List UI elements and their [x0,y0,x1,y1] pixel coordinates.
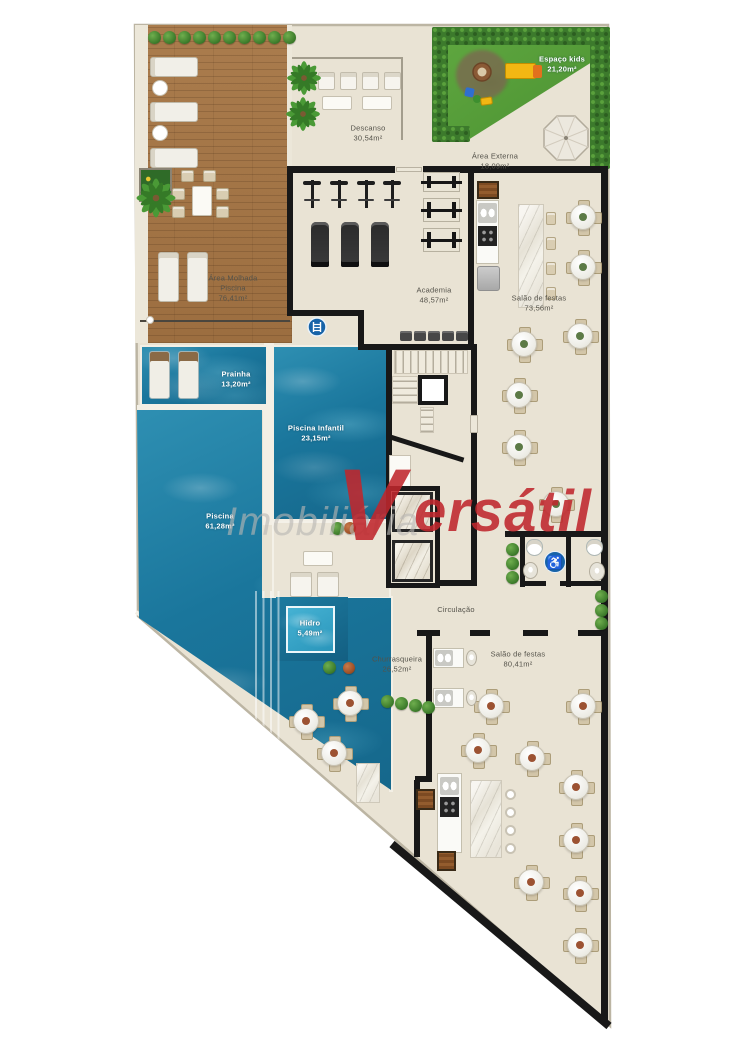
room-label-descanso: Descanso 30,54m² [351,123,386,143]
table-centerpiece [576,332,584,340]
gym-equipment [414,331,426,341]
basin [466,650,477,666]
room-name: Churrasqueira [372,654,422,664]
dining-table [507,327,541,361]
shrub [409,699,422,712]
table-centerpiece [330,749,338,757]
bar-stool [505,843,516,854]
bar-stool [505,807,516,818]
shrub [178,31,191,44]
deck-chair [216,188,229,200]
wall-segment [566,531,571,587]
shrub [163,31,176,44]
toilet [586,539,603,556]
table-centerpiece [515,391,523,399]
sun-lounger [158,252,179,302]
wall-segment [560,581,604,586]
hedge-right [590,27,610,169]
dining-table [502,430,536,464]
room-area: 76,41m² [208,293,257,303]
room-name: Piscina [205,511,234,521]
buffet-counter [356,763,380,803]
shrub [381,695,394,708]
dining-table [539,487,573,521]
dining-table [566,689,600,723]
table-centerpiece [576,941,584,949]
exercise-bike [357,180,375,208]
bar-sink [440,777,459,795]
sun-lounger [150,57,198,77]
side-table [152,80,168,96]
wall-segment [287,166,395,173]
shrub [208,31,221,44]
room-area: 61,28m² [205,521,234,531]
barbecue-grill [437,851,456,871]
dining-table [566,250,600,284]
weight-bench [423,198,460,222]
bar-stool [505,825,516,836]
floor-plan-canvas: Área Molhada Piscina 76,41m² Descanso 30… [0,0,742,1050]
stair-landing [418,375,448,405]
bar-island [470,780,502,858]
wall-segment [287,166,293,316]
gazebo [544,116,588,160]
room-name: Piscina [208,283,257,293]
hedge-top [432,27,610,45]
elevator-car [392,492,433,532]
bathroom-sink [523,562,538,579]
exercise-bike [303,180,321,208]
shrub [283,31,296,44]
room-name: Academia [417,285,452,295]
bathroom-sink [589,562,605,581]
room-label-salao-festas-1: Salão de festas 73,56m² [512,293,567,313]
table-centerpiece [579,702,587,710]
table-centerpiece [579,213,587,221]
table-centerpiece [515,443,523,451]
gym-equipment [456,331,468,341]
deck-table [192,186,212,216]
hedge-corner [432,126,470,142]
wall-segment [287,310,364,316]
shrub [422,701,435,714]
shrub [238,31,251,44]
table-centerpiece [302,717,310,725]
deck-chair [181,170,194,182]
wheelchair-icon: ♿ [544,551,566,573]
wall-segment [470,630,490,636]
sun-lounger [150,148,198,168]
side-table [152,125,168,141]
stair-flight [394,350,468,374]
treadmill [311,222,329,267]
shrub [506,571,519,584]
treadmill [371,222,389,267]
dining-table [474,689,508,723]
exercise-bike [383,180,401,208]
gym-equipment [400,331,412,341]
dining-table [502,378,536,412]
dining-table [563,876,597,910]
shrub [253,31,266,44]
room-name: Salão de festas [491,649,546,659]
room-name: Salão de festas [512,293,567,303]
room-area: 18,09m² [472,161,518,171]
bar-stool [505,789,516,800]
shrub-rust [343,662,355,674]
armchair [340,72,357,90]
room-label-piscina: Piscina 61,28m² [205,511,234,531]
barbecue-grill [477,181,499,199]
room-label-circulacao: Circulação [437,605,474,615]
barbecue-grill [416,789,435,810]
room-label-espaco-kids: Espaço kids 21,20m² [539,54,585,74]
shrub-rust [344,522,356,534]
weight-bench [423,228,460,252]
room-label-area-molhada: Área Molhada Piscina 76,41m² [208,273,257,302]
wall-segment [468,166,474,350]
room-name: Área Molhada [208,273,257,283]
stair-flight [420,407,434,433]
elevator-car [392,540,433,582]
rail-post [146,316,154,324]
wash-sink [435,650,453,666]
shrub [395,697,408,710]
door-opening [470,415,478,433]
shrub [595,604,608,617]
in-pool-lounger [149,351,170,399]
table-centerpiece [579,263,587,271]
shrub [223,31,236,44]
room-name: Prainha [221,369,250,379]
spa-chair [290,572,312,597]
planter-box [139,168,172,202]
sun-lounger [150,102,198,122]
room-name: Piscina Infantil [288,423,344,433]
room-area: 73,56m² [512,303,567,313]
in-pool-lounger [178,351,199,399]
gym-equipment [428,331,440,341]
wall-segment [520,531,525,587]
deck-chair [216,206,229,218]
shrub [595,590,608,603]
treadmill [341,222,359,267]
dining-table [563,928,597,962]
pool-steps [255,591,284,744]
under-stair-closet [389,455,411,489]
hedge-left [432,27,448,142]
coffee-table [362,96,392,110]
room-area: 30,54m² [351,133,386,143]
dining-table [289,704,323,738]
dining-table [514,865,548,899]
wheelchair-glyph: ♿ [547,556,563,569]
room-name: Área Externa [472,151,518,161]
room-area: 48,57m² [417,295,452,305]
spa-chair [317,572,339,597]
room-label-academia: Academia 48,57m² [417,285,452,305]
room-label-salao-festas-2: Salão de festas 80,41m² [491,649,546,669]
room-name: Espaço kids [539,54,585,64]
table-centerpiece [520,340,528,348]
deck-chair [172,188,185,200]
table-centerpiece [528,754,536,762]
table-centerpiece [552,500,560,508]
table-centerpiece [474,746,482,754]
shrub [268,31,281,44]
room-area: 26,52m² [372,664,422,674]
armchair [318,72,335,90]
shrub [506,557,519,570]
table-centerpiece [487,702,495,710]
room-area: 21,20m² [539,64,585,74]
table-centerpiece [572,783,580,791]
dining-table [559,823,593,857]
dining-table [515,741,549,775]
dining-table [317,736,351,770]
playground-slide [505,63,536,79]
wall-segment [520,581,546,586]
room-label-hidro: Hidro 5,49m² [298,618,323,638]
stair-flight [392,376,418,404]
room-label-prainha: Prainha 13,20m² [221,369,250,389]
dining-table [461,733,495,767]
bar-cooktop [440,797,459,817]
gym-equipment [442,331,454,341]
island-chair [546,237,556,250]
shrub [595,617,608,630]
island-chair [546,212,556,225]
room-label-piscina-infantil: Piscina Infantil 23,15m² [288,423,344,443]
exercise-bike [330,180,348,208]
shrub [148,31,161,44]
pool-coping [263,408,272,525]
room-area: 5,49m² [298,628,323,638]
weight-bench [423,172,460,192]
room-area: 80,41m² [491,659,546,669]
armchair [362,72,379,90]
coffee-table [322,96,352,110]
deck-chair [172,206,185,218]
wall-segment [471,350,477,418]
wall-segment [471,432,477,586]
room-label-churrasqueira: Churrasqueira 26,52m² [372,654,422,674]
table-centerpiece [346,699,354,707]
deck-chair [203,170,216,182]
refrigerator [477,266,500,291]
spa-control-panel [303,551,333,566]
dining-table [563,319,597,353]
shrub [506,543,519,556]
dining-table [559,770,593,804]
room-area: 13,20m² [221,379,250,389]
table-centerpiece [576,889,584,897]
toilet [526,539,543,556]
table-centerpiece [527,878,535,886]
wall-segment [523,630,548,636]
kitchen-sink [478,203,497,223]
dining-table [566,200,600,234]
room-name: Circulação [437,605,474,615]
shrub [331,522,344,535]
pool-ladder-icon [308,318,326,336]
room-name: Descanso [351,123,386,133]
room-area: 23,15m² [288,433,344,443]
cooktop [478,226,497,246]
wash-sink [435,690,453,706]
playground-bench [480,96,493,106]
dining-table [333,686,367,720]
shrub [193,31,206,44]
room-label-area-externa: Área Externa 18,09m² [472,151,518,171]
armchair [384,72,401,90]
shrub [323,661,336,674]
door-opening [396,167,422,172]
island-chair [546,262,556,275]
basin [466,690,477,706]
deck-rail [140,320,290,322]
table-centerpiece [572,836,580,844]
sun-lounger [187,252,208,302]
room-name: Hidro [298,618,323,628]
